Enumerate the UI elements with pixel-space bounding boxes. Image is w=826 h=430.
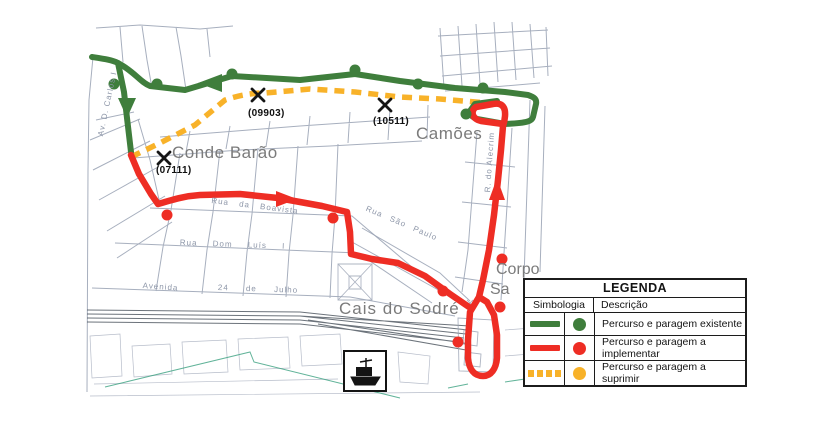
label-cais-do-sodre: Cais do Sodré <box>339 299 460 319</box>
route-to-implement-camoes-loop <box>473 104 505 126</box>
label-conde-barao: Conde Barão <box>172 143 278 163</box>
stop-code-07111: (07111) <box>156 165 191 176</box>
label-camoes: Camões <box>416 124 482 144</box>
legend-row-existing: Percurso e paragem existente <box>525 313 745 336</box>
red-line-swatch <box>530 345 560 351</box>
green-line-swatch <box>530 321 560 327</box>
yellow-stop-swatch <box>573 367 586 380</box>
route-map-page: Conde Barão Camões Cais do Sodré Corpo S… <box>0 0 826 430</box>
legend-label-to-implement: Percurso e paragem a implementar <box>594 336 745 360</box>
green-stop-swatch <box>573 318 586 331</box>
legend-row-to-implement: Percurso e paragem a implementar <box>525 336 745 361</box>
green-arrow-west <box>198 74 222 92</box>
legend-label-existing: Percurso e paragem existente <box>594 313 745 335</box>
label-corpo-santo-line1: Corpo <box>496 261 540 279</box>
legend-col-description: Descrição <box>593 298 745 312</box>
label-corpo-santo-line2: Sa <box>490 281 510 299</box>
legend-row-to-suppress: Percurso e paragem a suprimir <box>525 361 745 385</box>
legend-col-symbology: Simbologia <box>525 299 593 311</box>
existing-stops <box>109 65 489 120</box>
legend-title: LEGENDA <box>525 280 745 298</box>
stop-code-09903: (09903) <box>248 108 285 119</box>
stop-code-10511: (10511) <box>373 116 409 127</box>
legend-label-to-suppress: Percurso e paragem a suprimir <box>594 361 745 385</box>
legend-header: Simbologia Descrição <box>525 298 745 313</box>
ferry-icon <box>344 351 386 391</box>
legend: LEGENDA Simbologia Descrição Percurso e … <box>523 278 747 387</box>
red-stop-swatch <box>573 342 586 355</box>
praca-square <box>338 264 372 300</box>
yellow-dashed-line-swatch <box>528 370 561 377</box>
